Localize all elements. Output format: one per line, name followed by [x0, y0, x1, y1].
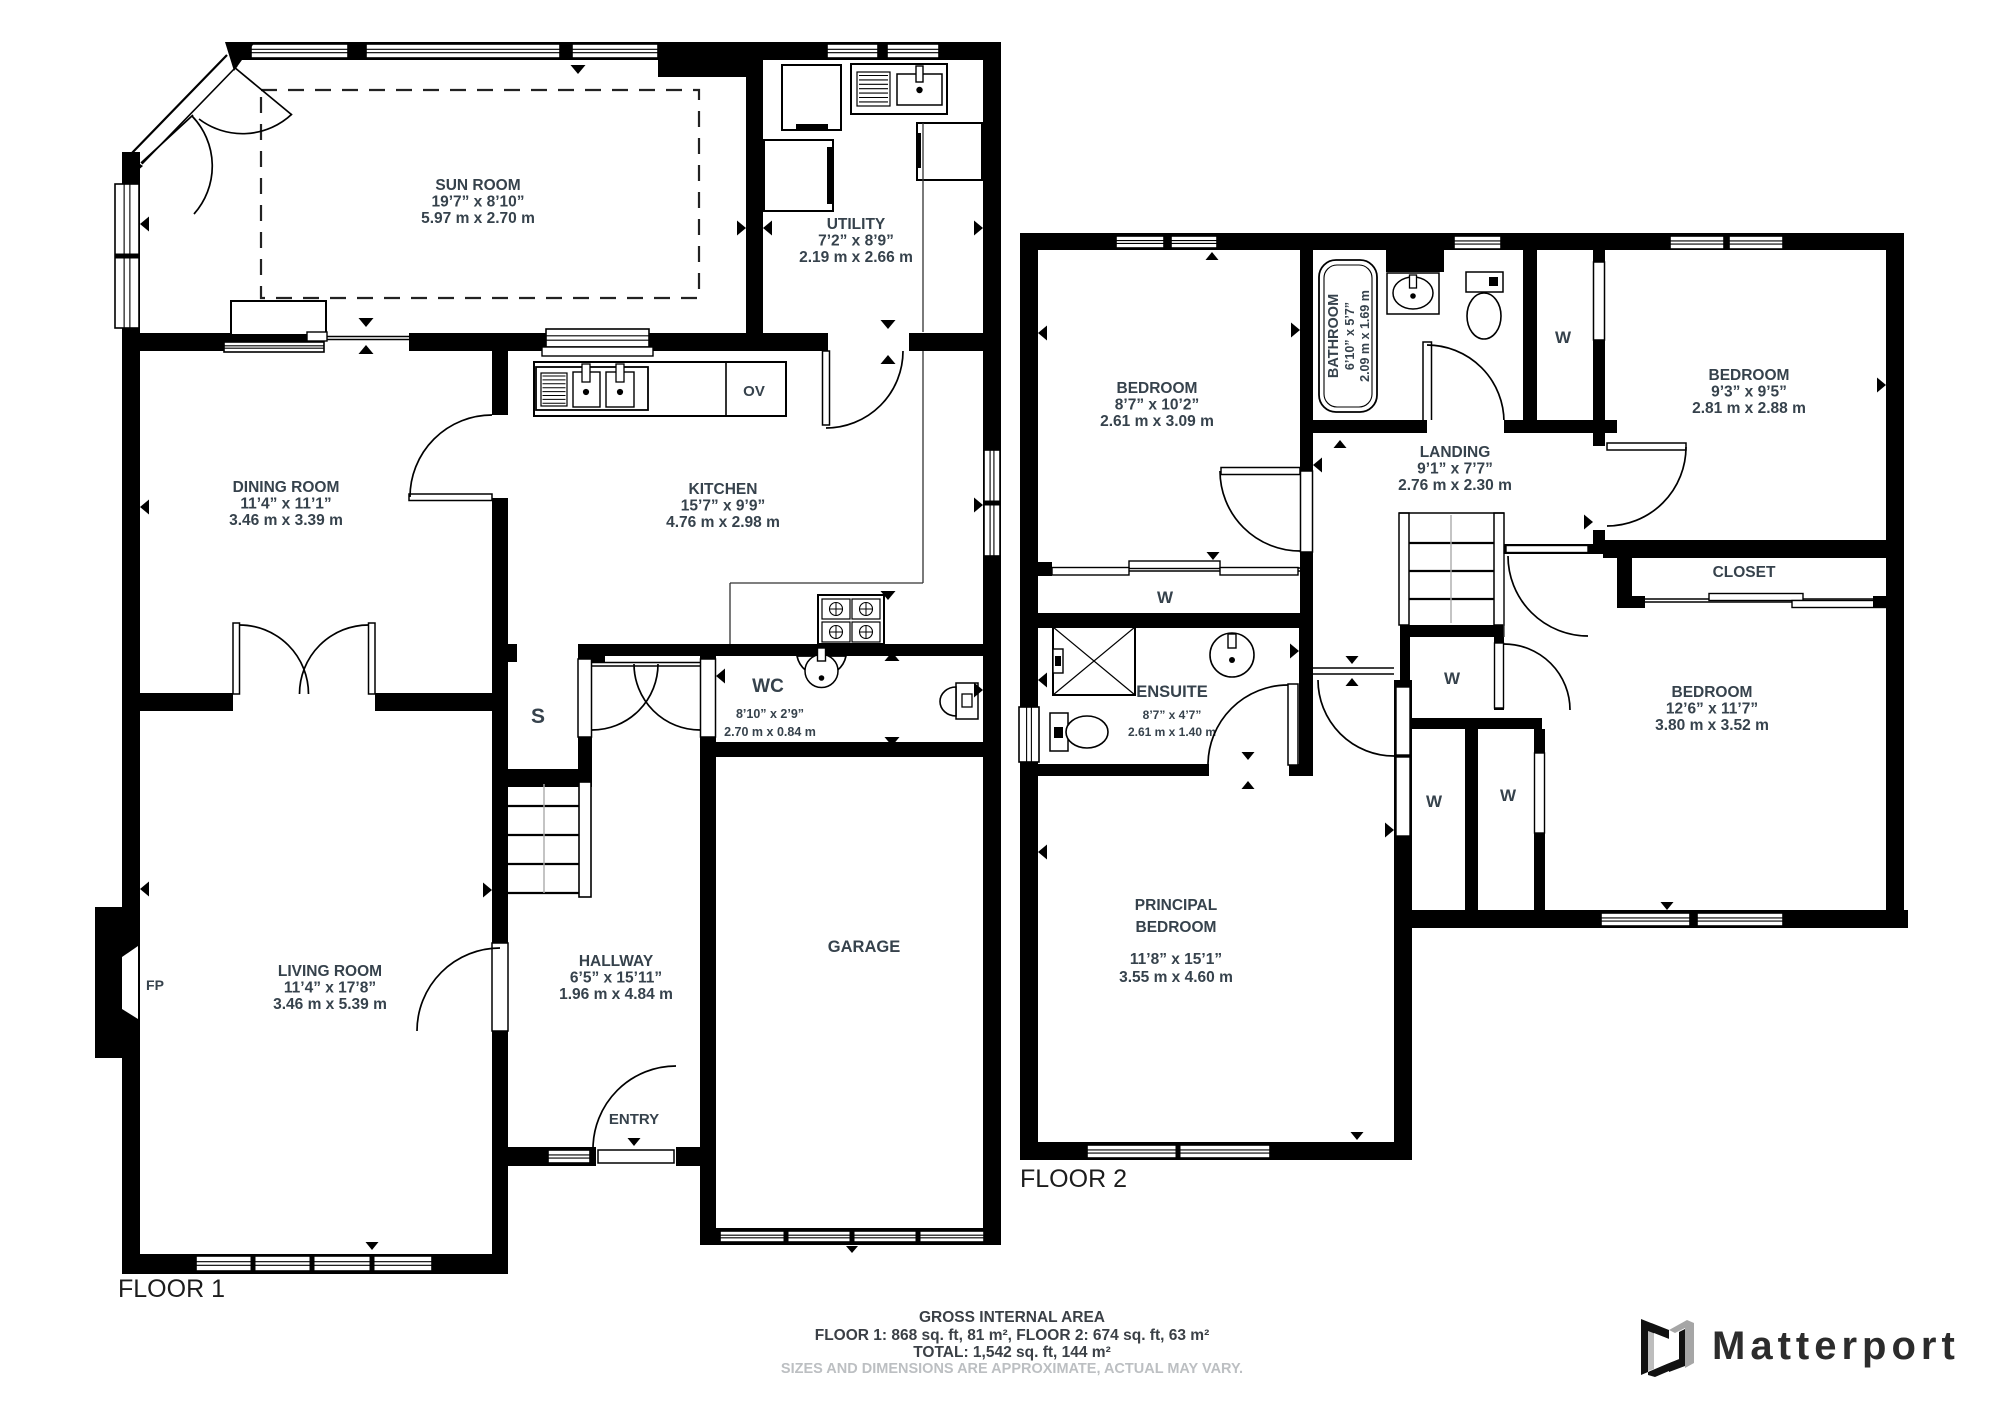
svg-text:7’2” x 8’9”: 7’2” x 8’9” — [818, 233, 894, 250]
svg-text:WC: WC — [752, 676, 784, 697]
svg-text:SIZES AND DIMENSIONS ARE APPRO: SIZES AND DIMENSIONS ARE APPROXIMATE, AC… — [781, 1361, 1243, 1377]
svg-text:FP: FP — [146, 977, 164, 993]
svg-text:4.76 m x 2.98 m: 4.76 m x 2.98 m — [666, 514, 780, 531]
svg-text:12’6” x 11’7”: 12’6” x 11’7” — [1666, 701, 1758, 718]
svg-text:Matterport: Matterport — [1712, 1324, 1960, 1368]
svg-text:1.96 m x 4.84 m: 1.96 m x 4.84 m — [559, 986, 673, 1003]
svg-text:2.81 m x 2.88 m: 2.81 m x 2.88 m — [1692, 400, 1806, 417]
svg-text:3.46 m x 3.39 m: 3.46 m x 3.39 m — [229, 512, 343, 529]
svg-text:LIVING ROOM: LIVING ROOM — [278, 963, 382, 980]
svg-text:DINING ROOM: DINING ROOM — [233, 479, 340, 496]
svg-text:BEDROOM: BEDROOM — [1672, 684, 1753, 701]
svg-text:CLOSET: CLOSET — [1713, 564, 1776, 581]
svg-text:BEDROOM: BEDROOM — [1117, 380, 1198, 397]
svg-text:ENTRY: ENTRY — [609, 1111, 659, 1128]
svg-text:BATHROOM: BATHROOM — [1326, 294, 1342, 378]
svg-text:19’7” x 8’10”: 19’7” x 8’10” — [431, 194, 524, 211]
svg-text:11’8” x 15’1”: 11’8” x 15’1” — [1130, 951, 1222, 968]
svg-text:2.70 m x 0.84 m: 2.70 m x 0.84 m — [724, 725, 816, 739]
svg-text:ENSUITE: ENSUITE — [1136, 683, 1208, 701]
svg-text:BEDROOM: BEDROOM — [1709, 367, 1790, 384]
svg-text:S: S — [531, 705, 545, 728]
svg-text:BEDROOM: BEDROOM — [1136, 919, 1217, 936]
svg-text:FLOOR 2: FLOOR 2 — [1020, 1165, 1127, 1193]
svg-text:FLOOR 1: 868 sq. ft, 81 m², FL: FLOOR 1: 868 sq. ft, 81 m², FLOOR 2: 674… — [815, 1327, 1209, 1344]
svg-text:PRINCIPAL: PRINCIPAL — [1135, 897, 1217, 914]
svg-text:GARAGE: GARAGE — [828, 938, 900, 956]
svg-text:W: W — [1555, 328, 1572, 347]
svg-text:9’3” x 9’5”: 9’3” x 9’5” — [1711, 384, 1787, 401]
svg-text:W: W — [1444, 669, 1461, 688]
svg-text:8’10” x 2’9”: 8’10” x 2’9” — [736, 707, 804, 721]
svg-text:TOTAL: 1,542 sq. ft, 144 m²: TOTAL: 1,542 sq. ft, 144 m² — [913, 1344, 1111, 1361]
svg-text:3.46 m x 5.39 m: 3.46 m x 5.39 m — [273, 996, 387, 1013]
svg-text:FLOOR 1: FLOOR 1 — [118, 1275, 225, 1303]
svg-text:OV: OV — [743, 383, 765, 400]
svg-text:SUN ROOM: SUN ROOM — [435, 177, 520, 194]
svg-text:8’7” x 4’7”: 8’7” x 4’7” — [1143, 708, 1202, 722]
svg-text:6’10” x 5’7”: 6’10” x 5’7” — [1343, 302, 1357, 370]
svg-text:9’1” x 7’7”: 9’1” x 7’7” — [1417, 461, 1493, 478]
svg-text:W: W — [1157, 588, 1174, 607]
svg-text:UTILITY: UTILITY — [827, 216, 886, 233]
svg-text:3.80 m x 3.52 m: 3.80 m x 3.52 m — [1655, 717, 1769, 734]
svg-text:5.97 m x 2.70 m: 5.97 m x 2.70 m — [421, 210, 535, 227]
svg-text:15’7” x 9’9”: 15’7” x 9’9” — [681, 498, 765, 515]
svg-text:11’4” x 17’8”: 11’4” x 17’8” — [284, 980, 376, 997]
svg-text:2.61 m x 3.09 m: 2.61 m x 3.09 m — [1100, 413, 1214, 430]
svg-text:3.55 m x 4.60 m: 3.55 m x 4.60 m — [1119, 969, 1233, 986]
svg-text:2.09 m x 1.69 m: 2.09 m x 1.69 m — [1358, 290, 1372, 382]
svg-text:GROSS INTERNAL AREA: GROSS INTERNAL AREA — [919, 1309, 1105, 1326]
svg-text:8’7” x 10’2”: 8’7” x 10’2” — [1115, 397, 1199, 414]
svg-text:KITCHEN: KITCHEN — [689, 481, 758, 498]
svg-text:W: W — [1426, 792, 1443, 811]
svg-text:W: W — [1500, 786, 1517, 805]
svg-text:2.61 m x 1.40 m: 2.61 m x 1.40 m — [1128, 725, 1216, 739]
svg-text:2.76 m x 2.30 m: 2.76 m x 2.30 m — [1398, 477, 1512, 494]
svg-text:6’5” x 15’11”: 6’5” x 15’11” — [570, 970, 662, 987]
svg-text:2.19 m x 2.66 m: 2.19 m x 2.66 m — [799, 249, 913, 266]
svg-text:LANDING: LANDING — [1420, 444, 1491, 461]
svg-text:11’4” x 11’1”: 11’4” x 11’1” — [240, 496, 331, 513]
svg-text:HALLWAY: HALLWAY — [579, 953, 654, 970]
